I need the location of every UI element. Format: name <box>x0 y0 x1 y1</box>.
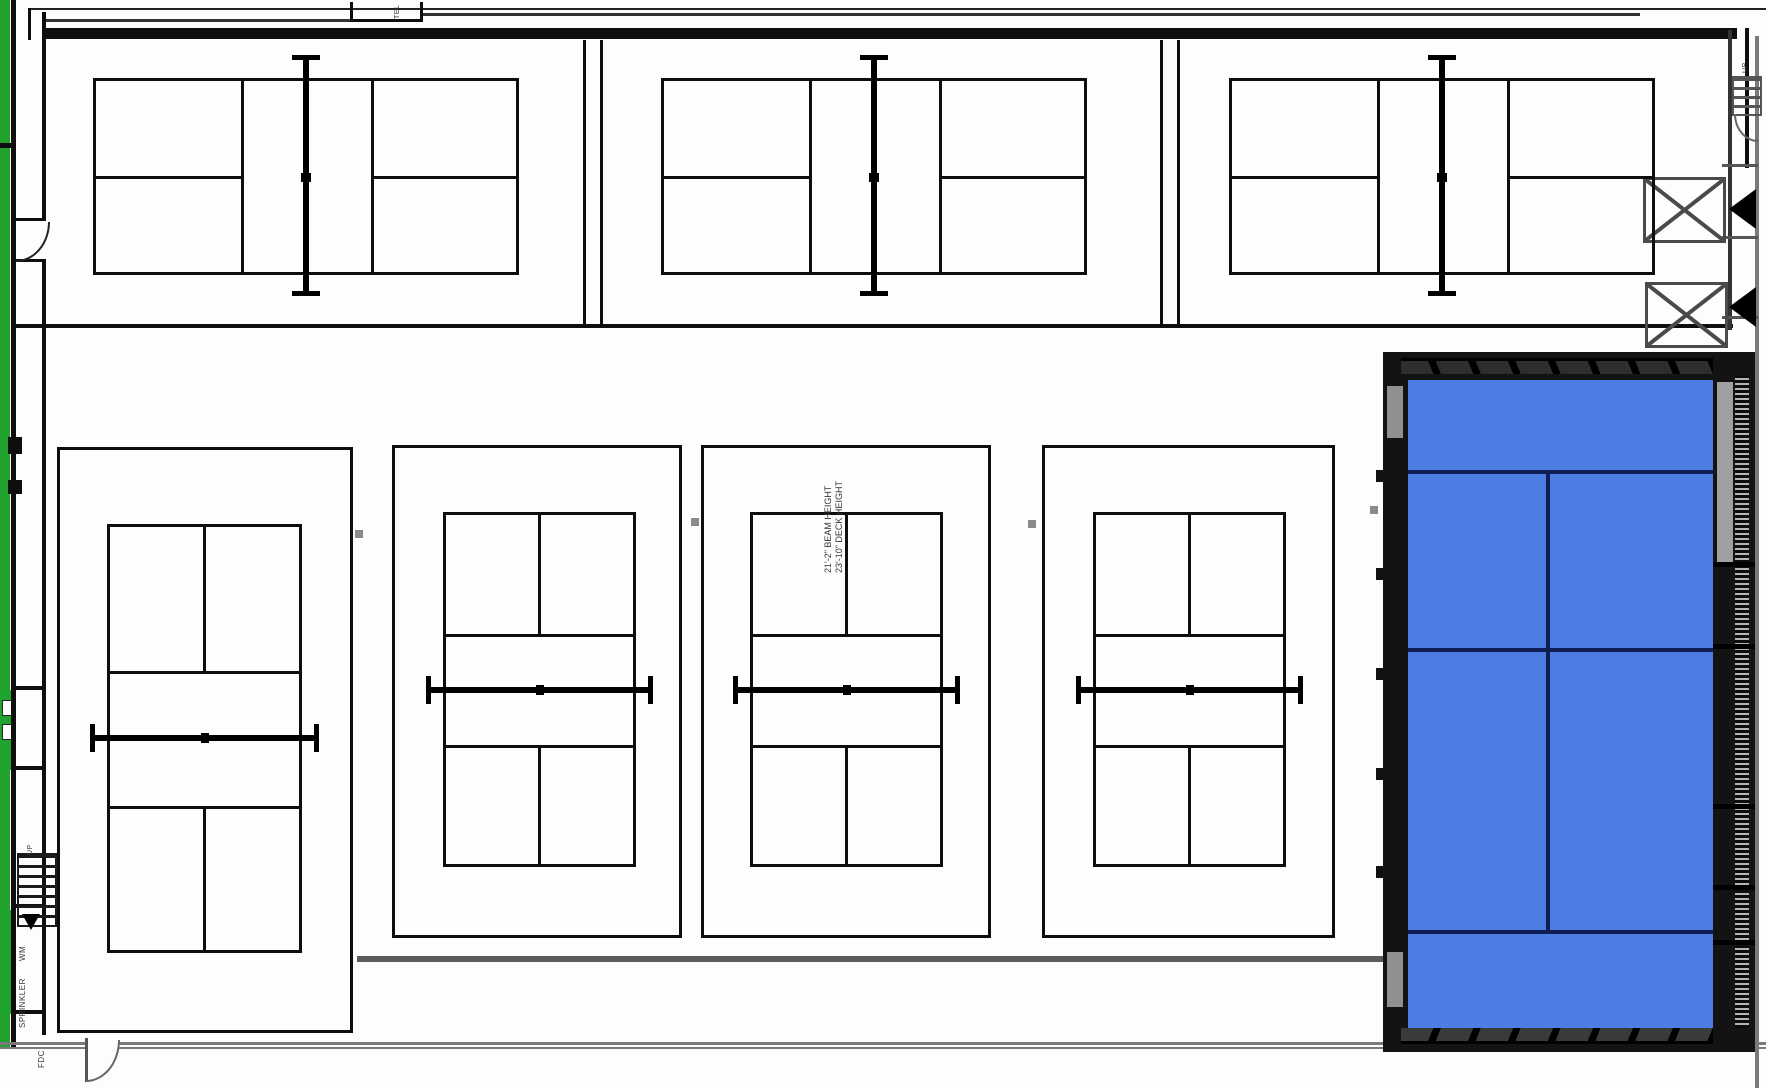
net-post <box>1298 676 1303 704</box>
center-line <box>538 512 541 634</box>
center-line <box>203 806 206 953</box>
net-post <box>733 676 738 704</box>
court-highlighted[interactable] <box>1383 352 1755 1052</box>
frame-strut-band-bottom <box>1401 1028 1713 1044</box>
kitchen-line <box>443 634 636 637</box>
kitchen-line <box>107 671 302 674</box>
up-label-top-right: UP <box>1741 62 1750 73</box>
floor-plan: TEL UP UP WM SPRINKLER FDC 21'-2" BEAM H… <box>0 0 1766 1088</box>
center-line <box>538 745 541 867</box>
net-center-mark <box>301 173 311 182</box>
net-post <box>1428 291 1456 296</box>
kitchen-line <box>1377 78 1380 275</box>
court-gap-marker <box>355 530 363 538</box>
frame-rail-right <box>1713 804 1755 809</box>
kitchen-line <box>750 634 943 637</box>
up-label-left: UP <box>26 844 35 855</box>
frame-panel-right <box>1717 382 1733 562</box>
beam-height-note: 21'-2" BEAM HEIGHT <box>823 481 834 573</box>
frame-anchor-nub <box>1376 668 1383 680</box>
net-center-mark <box>1437 173 1447 182</box>
kitchen-line <box>241 78 244 275</box>
court-center-line <box>1546 470 1550 934</box>
frame-anchor-nub <box>1376 568 1383 580</box>
frame-panel-left-top <box>1387 386 1403 438</box>
net-center-mark <box>201 733 209 743</box>
frame-rail-right <box>1713 940 1755 945</box>
court-gap-marker <box>691 518 699 526</box>
frame-rail-right <box>1713 885 1755 890</box>
fdc-label: FDC <box>37 1050 46 1068</box>
service-line <box>661 176 809 179</box>
center-line <box>1188 745 1191 867</box>
net-post <box>1428 55 1456 60</box>
court-line <box>1408 930 1713 934</box>
tel-label: TEL <box>393 5 402 19</box>
net-post <box>860 55 888 60</box>
frame-panel-left-bottom <box>1387 952 1403 1007</box>
frame-strut-band-top <box>1401 358 1713 374</box>
net-post <box>860 291 888 296</box>
kitchen-line <box>1093 634 1286 637</box>
center-line <box>203 524 206 671</box>
frame-rail-right <box>1713 562 1755 567</box>
net-post <box>314 724 319 752</box>
net-center-mark <box>869 173 879 182</box>
center-line <box>1188 512 1191 634</box>
net-post <box>1076 676 1081 704</box>
net-center-mark <box>536 685 544 695</box>
height-annotation: 21'-2" BEAM HEIGHT 23'-10" DECK HEIGHT <box>823 481 845 573</box>
fence-screen-right <box>1735 376 1749 1028</box>
sprinkler-label: SPRINKLER <box>18 978 27 1028</box>
frame-anchor-nub <box>1376 470 1383 482</box>
center-line <box>845 512 848 634</box>
court-gap-marker <box>1028 520 1036 528</box>
service-line <box>939 176 1087 179</box>
net-center-mark <box>843 685 851 695</box>
net-post <box>90 724 95 752</box>
service-line <box>1229 176 1377 179</box>
wm-label: WM <box>18 946 27 961</box>
service-line <box>93 176 241 179</box>
center-line <box>845 745 848 867</box>
net-center-mark <box>1186 685 1194 695</box>
service-line <box>1507 176 1655 179</box>
net-post <box>955 676 960 704</box>
net-post <box>292 291 320 296</box>
court-line <box>1408 648 1713 652</box>
net-post <box>426 676 431 704</box>
court-gap-marker <box>1370 506 1378 514</box>
deck-height-note: 23'-10" DECK HEIGHT <box>834 481 845 573</box>
frame-anchor-nub <box>1376 866 1383 878</box>
frame-anchor-nub <box>1376 768 1383 780</box>
net-post <box>292 55 320 60</box>
kitchen-line <box>809 78 812 275</box>
net-post <box>648 676 653 704</box>
courts-layer <box>0 0 1766 1088</box>
service-line <box>371 176 519 179</box>
frame-rail-right <box>1713 644 1755 649</box>
court-line <box>1408 470 1713 474</box>
